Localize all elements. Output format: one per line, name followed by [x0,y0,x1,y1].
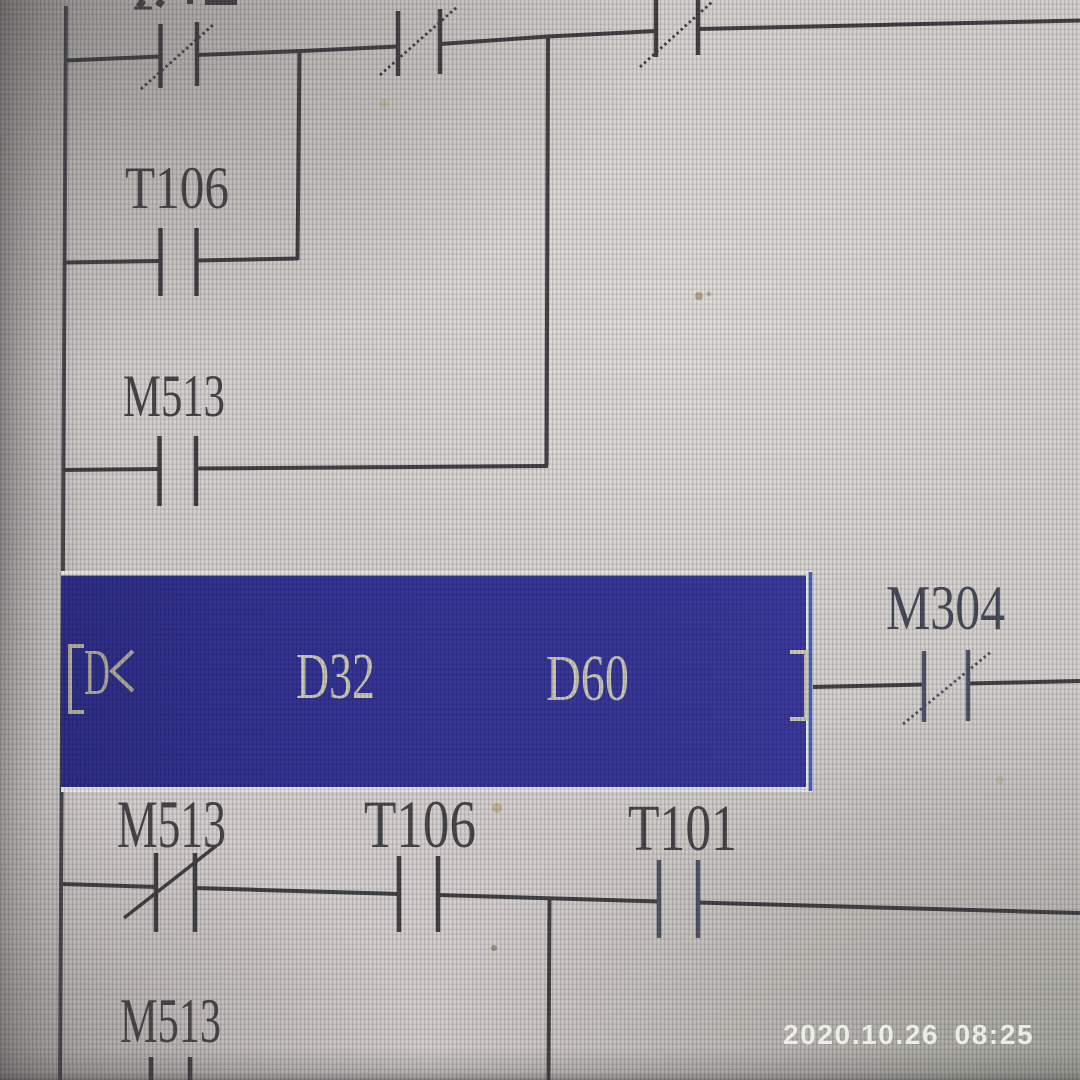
svg-text:T106: T106 [125,155,229,221]
svg-text:M513: M513 [123,363,225,429]
svg-text:T106: T106 [364,786,476,862]
svg-text:M304: M304 [886,572,1005,643]
svg-text:M513: M513 [117,786,226,862]
svg-text:D60: D60 [546,642,629,715]
svg-text:D32: D32 [296,640,375,713]
svg-text:T101: T101 [628,792,737,865]
svg-text:M513: M513 [120,985,221,1056]
svg-text:D: D [84,636,110,709]
